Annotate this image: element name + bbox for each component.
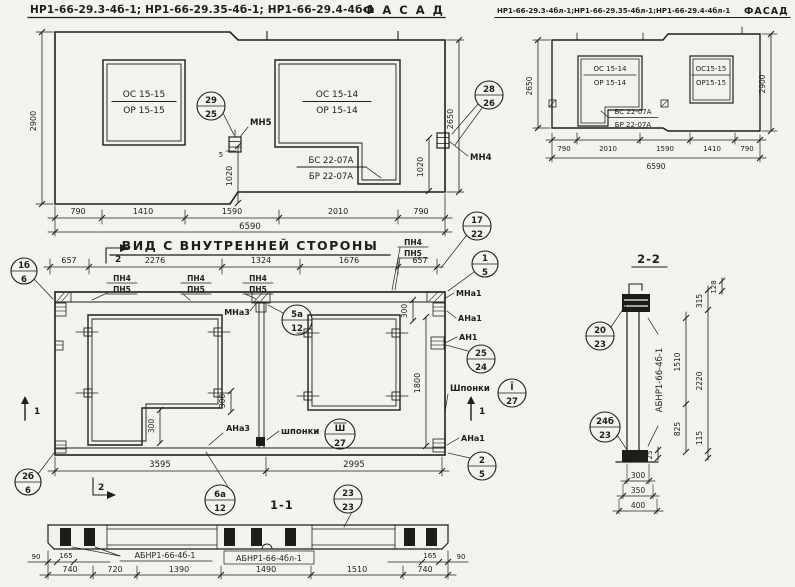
- callout-23-23: 23 23: [334, 485, 362, 527]
- callout-top: 5а: [291, 310, 303, 320]
- leader-line: [268, 305, 283, 313]
- callout-top: 17: [471, 216, 483, 226]
- leader-line: [447, 311, 456, 318]
- bottom-notch: [262, 544, 272, 549]
- window1-mark-bottom: ОР 15-15: [123, 106, 165, 116]
- window2-mark-top: ОС 15-14: [316, 90, 359, 100]
- dim-90: 90: [457, 553, 466, 561]
- facade-right-view: НР1-66-29.3-4бл-1;НР1-66-29.35-4бл-1;НР1…: [495, 6, 790, 171]
- pn4-label: ПН4: [187, 274, 205, 283]
- dim-1590: 1590: [222, 207, 242, 216]
- label-shponki-mid: шпонки: [281, 427, 319, 437]
- dim-300: 300: [631, 471, 646, 480]
- callout-top: 2б: [22, 471, 34, 482]
- facade-left-title-word: Ф А С А Д: [363, 3, 445, 17]
- leader-line: [95, 547, 120, 556]
- facade-right-title-word: ФАСАД: [744, 6, 789, 17]
- dim-25: 25: [646, 451, 654, 460]
- top-dim-extensions: [50, 259, 437, 274]
- callout-bottom: 24: [475, 363, 487, 373]
- callout-bottom: 25: [205, 110, 217, 120]
- callout-top: 28: [483, 85, 495, 95]
- pn4-label: ПН4: [113, 274, 131, 283]
- dim-height-right: 2650: [446, 109, 455, 129]
- dim-165: 165: [423, 552, 436, 560]
- callout-bottom: 22: [471, 230, 483, 240]
- callout-28-26: 28 26: [452, 81, 503, 145]
- panel-outline: [552, 34, 760, 131]
- top-hook: [629, 284, 642, 294]
- leader-line: [209, 433, 223, 445]
- leader-line: [445, 337, 457, 343]
- pn5-label: ПН5: [404, 249, 422, 258]
- dim-1020-right: 1020: [416, 157, 425, 177]
- dim-657: 657: [61, 256, 76, 265]
- leader-line: [240, 127, 248, 137]
- callout-bottom: 27: [334, 439, 346, 449]
- callout-20-23: 20 23: [586, 305, 626, 350]
- callout-bottom: 23: [342, 503, 354, 513]
- callout-bottom: 12: [291, 324, 303, 334]
- dim-gap: 5: [219, 151, 223, 159]
- marker-1-label: 1: [479, 407, 485, 417]
- callout-24b-23: 24б 23: [590, 412, 629, 453]
- callout-5a-12: 5а 12: [268, 305, 312, 335]
- dim-315: 315: [695, 294, 704, 309]
- drawing-sheet: НР1-66-29.3-4б-1; НР1-66-29.35-4б-1; НР1…: [0, 0, 795, 587]
- shear-key-block: [256, 437, 265, 446]
- pn-label-group-3: ПН4 ПН5: [243, 274, 273, 299]
- dim-300: 300: [218, 394, 227, 409]
- dim-115: 115: [695, 431, 704, 446]
- dim-1510: 1510: [673, 352, 682, 371]
- door-mark-top: БС 22-07А: [614, 108, 651, 116]
- embedded-channels: [60, 528, 437, 546]
- window1-frame: [107, 64, 181, 141]
- dim-1510: 1510: [347, 565, 367, 574]
- window1-mark-top: ОС 15-14: [594, 65, 628, 73]
- leader-line: [446, 345, 468, 351]
- door-mark-top: БС 22-07А: [309, 156, 354, 166]
- callout-bottom: 5: [482, 268, 488, 278]
- callout-25-24: 25 24: [446, 345, 495, 373]
- callout-top: 23: [342, 489, 354, 499]
- callout-1-5: 1 5: [448, 251, 498, 291]
- dim-350: 350: [631, 486, 646, 495]
- dim-790: 790: [557, 145, 570, 153]
- dim-1390: 1390: [169, 565, 189, 574]
- dim-300: 300: [400, 304, 409, 319]
- leader-line: [206, 452, 228, 487]
- inner-view-title: ВИД С ВНУТРЕННЕЙ СТОРОНЫ: [122, 238, 379, 253]
- dim-1676: 1676: [339, 256, 359, 265]
- facade-left-title: НР1-66-29.3-4б-1; НР1-66-29.35-4б-1; НР1…: [30, 4, 375, 16]
- leader-line: [648, 318, 658, 334]
- leader-line: [441, 236, 466, 268]
- anchor-mn4-label: МН4: [470, 153, 492, 163]
- callout-29-25: 29 25: [197, 92, 234, 135]
- inner-side-view: ВИД С ВНУТРЕННЕЙ СТОРОНЫ 657 2276 1324 1…: [11, 212, 526, 527]
- facade-right-title: НР1-66-29.3-4бл-1;НР1-66-29.35-4бл-1;НР1…: [497, 7, 730, 15]
- hatch-blocks: [55, 292, 445, 453]
- dim-790: 790: [413, 207, 428, 216]
- panel-drawing: НР1-66-29.3-4б-1; НР1-66-29.35-4б-1; НР1…: [0, 0, 795, 587]
- dim-740: 740: [417, 565, 432, 574]
- facade-left-view: НР1-66-29.3-4б-1; НР1-66-29.35-4б-1; НР1…: [28, 3, 503, 236]
- leader-line: [601, 111, 608, 117]
- callout-bottom: 6: [21, 275, 27, 285]
- section-2-2-title: 2-2: [637, 252, 661, 266]
- section-1-1-title: 1-1: [270, 498, 294, 512]
- callout-top: Ш: [335, 424, 346, 434]
- dim-1410: 1410: [703, 145, 721, 153]
- marker-2-label: 2: [98, 483, 104, 493]
- window1-mark-top: ОС 15-15: [123, 90, 165, 100]
- right-opening-anchors: [297, 329, 408, 400]
- anchor-mn4: [437, 133, 449, 148]
- callout-top: 6а: [214, 490, 226, 500]
- pn4-label: ПН4: [249, 274, 267, 283]
- callout-2-5: 2 5: [448, 452, 496, 480]
- section-marker-1-right: 1: [467, 396, 485, 420]
- window2-mark-bottom: ОР 15-14: [316, 106, 358, 116]
- section-marker-2-bottom: 2: [93, 478, 116, 499]
- dim-1324: 1324: [251, 256, 271, 265]
- window2-mark-top: ОС15-15: [696, 65, 727, 73]
- leader-line: [611, 305, 626, 327]
- label-mna3: МНа3: [224, 308, 250, 317]
- window1-opening: [103, 60, 185, 145]
- leader-line: [183, 294, 190, 300]
- pn5-label: ПН5: [249, 285, 267, 294]
- section-outline: [48, 525, 448, 549]
- dim-1490: 1490: [256, 565, 276, 574]
- dim-3595: 3595: [149, 460, 171, 470]
- dim-2220: 2220: [695, 371, 704, 390]
- leader-line: [34, 279, 53, 299]
- door-mark-bottom: БР 22-07А: [309, 172, 353, 182]
- label-abnr-mid: АБНР1-66-4бл-1: [236, 554, 302, 563]
- label-an1: АН1: [459, 333, 478, 342]
- dim-2010: 2010: [328, 207, 348, 216]
- callout-2b-6: 2б 6: [15, 453, 54, 496]
- dim-720: 720: [107, 565, 122, 574]
- label-shponki-right: Шпонки: [450, 384, 490, 394]
- label-ana3: АНа3: [226, 424, 250, 433]
- leader-line: [250, 301, 258, 311]
- mid-anchor: [661, 100, 668, 107]
- end-dims-left: 90 165: [28, 552, 110, 565]
- pn5-label: ПН5: [187, 285, 205, 294]
- callout-bottom: 12: [214, 504, 226, 514]
- dim-90: 90: [32, 553, 41, 561]
- leader-line: [648, 426, 658, 446]
- dim-height-left: 2900: [29, 111, 38, 131]
- leader-line: [366, 167, 381, 178]
- marker-2-label: 2: [115, 255, 121, 265]
- dim-790: 790: [740, 145, 753, 153]
- callout-bottom: 27: [506, 397, 518, 407]
- callout-top: 1б: [18, 260, 30, 271]
- leader-line: [267, 431, 279, 440]
- leader-line: [245, 294, 256, 299]
- dim-825: 825: [673, 422, 682, 437]
- dim-1410: 1410: [133, 207, 153, 216]
- marker-1-label: 1: [34, 407, 40, 417]
- right-opening-frame: [312, 319, 396, 406]
- label-ana1: АНа1: [458, 314, 482, 323]
- label-ana1-bottom: АНа1: [461, 434, 485, 443]
- dim-1800: 1800: [413, 373, 422, 393]
- callout-top: Ī: [510, 382, 513, 393]
- callout-top: 1: [482, 254, 488, 264]
- dim-2010: 2010: [599, 145, 617, 153]
- dim-height-right: 2900: [758, 74, 767, 93]
- top-channel: [622, 294, 650, 312]
- dim-790: 790: [70, 207, 85, 216]
- callout-top: 2: [479, 456, 485, 466]
- dim-height-left: 2650: [525, 76, 534, 95]
- leader-line: [448, 453, 470, 458]
- section-2-2-view: 2-2 АБНР1-66-4б-1 1510 825 315 2220 115: [586, 252, 725, 514]
- label-abnr-vertical: АБНР1-66-4б-1: [655, 348, 665, 413]
- section-marker-1-left: 1: [21, 396, 40, 420]
- pn-label-group-2: ПН4 ПН5: [181, 274, 211, 300]
- dim-400: 400: [631, 501, 646, 510]
- callout-top: 29: [205, 96, 217, 106]
- leader-line: [92, 293, 107, 300]
- dim-300: 300: [147, 419, 156, 434]
- callout-top: 20: [594, 326, 606, 336]
- dim-1590: 1590: [656, 145, 674, 153]
- left-opening-anchors: [76, 328, 230, 397]
- dim-128: 128: [710, 280, 718, 293]
- callout-bottom: 5: [479, 470, 485, 480]
- dim-740: 740: [62, 565, 77, 574]
- window2-mark-bottom: ОР15-15: [696, 79, 726, 87]
- callout-top: 24б: [596, 416, 614, 427]
- panel-outline: [55, 292, 445, 455]
- dim-total-6590: 6590: [239, 222, 261, 232]
- dim-2276: 2276: [145, 256, 165, 265]
- label-abnr-left: АБНР1-66-4б-1: [135, 551, 196, 560]
- label-mna1: МНа1: [456, 289, 482, 298]
- callout-bottom: 23: [594, 340, 606, 350]
- section-1-1-view: АБНР1-66-4б-1 АБНР1-66-4бл-1 90 165 165 …: [28, 525, 468, 579]
- leader-line: [447, 438, 459, 445]
- callout-top: 25: [475, 349, 487, 359]
- bottom-channel: [622, 450, 648, 462]
- dim-total-6590: 6590: [646, 162, 665, 171]
- pn-label-group-1: ПН4 ПН5: [92, 274, 137, 300]
- width-dims: 300 350 400: [613, 464, 663, 514]
- callout-bottom: 6: [25, 486, 31, 496]
- dim-1020-left: 1020: [225, 166, 234, 186]
- callout-6a-12: 6а 12: [205, 452, 235, 515]
- callout-I-27: Ī 27: [498, 379, 526, 407]
- callout-bottom: 26: [483, 99, 495, 109]
- window1-mark-bottom: ОР 15-14: [594, 79, 627, 87]
- pn4-label: ПН4: [404, 238, 422, 247]
- dim-2995: 2995: [343, 460, 365, 470]
- leader-line: [223, 113, 234, 135]
- callout-III-27: Ш 27: [325, 419, 355, 449]
- dim-165: 165: [59, 552, 72, 560]
- leader-line: [72, 547, 120, 556]
- callout-bottom: 23: [599, 431, 611, 441]
- callout-1b-6: 1б 6: [11, 258, 53, 299]
- pn5-label: ПН5: [113, 285, 131, 294]
- anchor-mn5-label: МН5: [250, 118, 272, 128]
- door-mark-bottom: БР 22-07А: [615, 121, 652, 129]
- end-dims-right: 165 90: [388, 552, 468, 565]
